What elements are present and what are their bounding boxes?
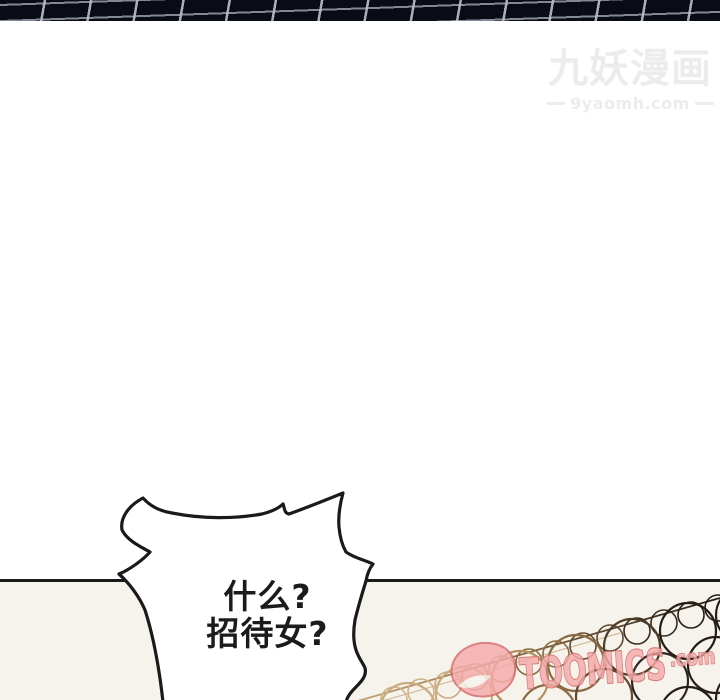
toomics-watermark-suffix: .com: [669, 644, 717, 671]
toomics-watermark-text: TOOMICS: [518, 640, 667, 699]
site-watermark-url: 9yaomh.com: [570, 94, 690, 113]
speech-line-1: 什么?: [160, 578, 375, 615]
watermark-dash-left-icon: [546, 102, 565, 105]
site-watermark-title: 九妖漫画: [546, 47, 714, 91]
speech-bubble-text: 什么? 招待女?: [160, 578, 375, 652]
watermark-dash-right-icon: [695, 102, 714, 105]
comic-page: 九妖漫画 9yaomh.com: [0, 0, 720, 700]
site-watermark-url-row: 9yaomh.com: [546, 94, 714, 113]
speech-line-2: 招待女?: [160, 615, 375, 652]
site-watermark: 九妖漫画 9yaomh.com: [546, 47, 714, 113]
ceiling-tile-grid-strip: [0, 0, 720, 21]
